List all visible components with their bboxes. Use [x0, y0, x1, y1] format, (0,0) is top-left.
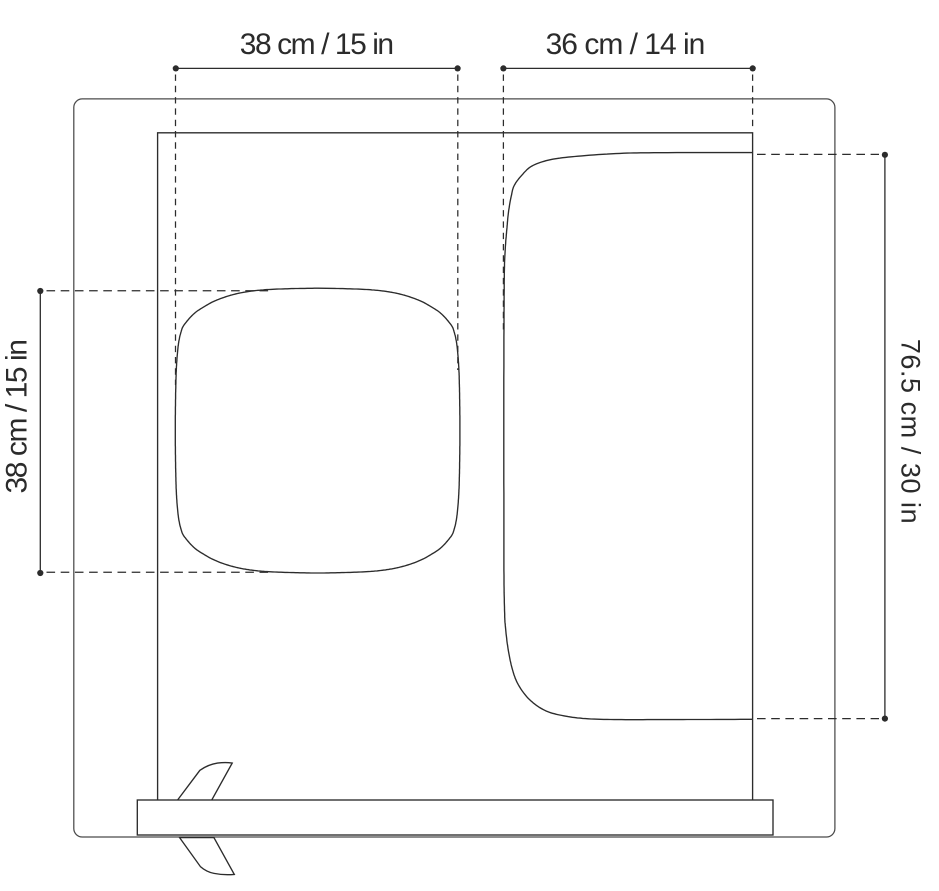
svg-text:76.5 cm / 30 in: 76.5 cm / 30 in	[896, 339, 926, 524]
svg-text:38 cm / 15 in: 38 cm / 15 in	[240, 28, 393, 61]
svg-text:38 cm / 15 in: 38 cm / 15 in	[1, 341, 34, 494]
svg-text:36 cm / 14 in: 36 cm / 14 in	[546, 28, 705, 61]
